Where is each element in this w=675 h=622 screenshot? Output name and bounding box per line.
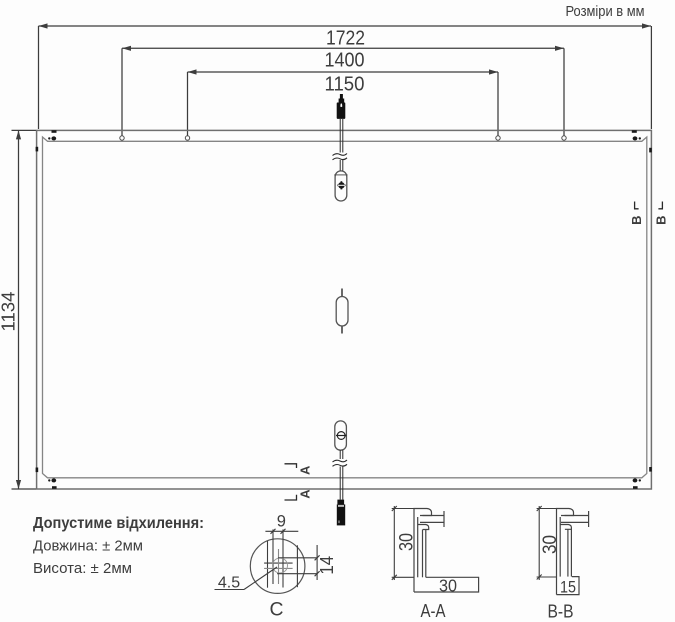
svg-text:30: 30 — [439, 576, 457, 596]
svg-text:14: 14 — [317, 556, 337, 575]
svg-text:B-B: B-B — [548, 602, 574, 622]
svg-text:A-A: A-A — [421, 601, 446, 621]
svg-text:Допустиме відхилення:: Допустиме відхилення: — [33, 515, 204, 532]
svg-text:B: B — [629, 216, 644, 225]
svg-text:9: 9 — [277, 513, 286, 531]
svg-text:15: 15 — [560, 578, 576, 597]
svg-text:B: B — [653, 216, 668, 225]
svg-text:1400: 1400 — [325, 50, 365, 72]
svg-text:4.5: 4.5 — [218, 575, 240, 592]
svg-text:Довжина: ± 2мм: Довжина: ± 2мм — [33, 538, 143, 555]
svg-text:1134: 1134 — [0, 292, 19, 332]
svg-text:Висота: ± 2мм: Висота: ± 2мм — [33, 560, 132, 577]
svg-text:A: A — [298, 489, 313, 499]
svg-text:A: A — [298, 465, 313, 475]
svg-text:1722: 1722 — [326, 28, 365, 50]
svg-text:Розміри в мм: Розміри в мм — [566, 4, 645, 20]
svg-text:30: 30 — [540, 535, 561, 554]
svg-text:1150: 1150 — [325, 74, 365, 96]
svg-text:C: C — [270, 600, 284, 621]
